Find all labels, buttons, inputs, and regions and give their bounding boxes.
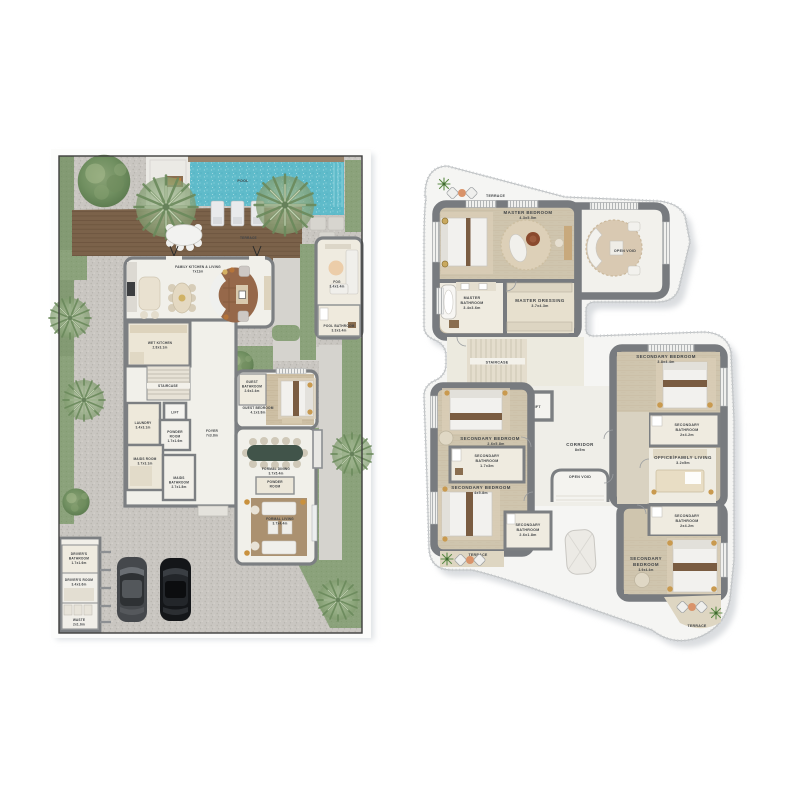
svg-text:3.4x3.6m: 3.4x3.6m (463, 306, 480, 310)
svg-text:FORMAL LIVING: FORMAL LIVING (266, 517, 294, 521)
svg-text:2.6x5.8m: 2.6x5.8m (487, 442, 504, 446)
svg-text:SECONDARY BEDROOM: SECONDARY BEDROOM (636, 354, 696, 359)
svg-text:WASTE: WASTE (73, 618, 85, 622)
svg-text:7x11m: 7x11m (193, 270, 204, 274)
svg-text:DRIVER'S ROOM: DRIVER'S ROOM (65, 578, 93, 582)
svg-text:BATHROOM: BATHROOM (517, 528, 540, 532)
svg-text:MAIDS: MAIDS (173, 476, 184, 480)
svg-text:MASTER: MASTER (464, 296, 481, 300)
svg-text:4.1x3.8m: 4.1x3.8m (250, 411, 265, 415)
svg-text:DRIVER'S: DRIVER'S (71, 552, 88, 556)
svg-text:SECONDARY BEDROOM: SECONDARY BEDROOM (451, 485, 511, 490)
svg-text:BATHROOM: BATHROOM (169, 481, 189, 485)
svg-text:1.7x1.6m: 1.7x1.6m (167, 439, 182, 443)
svg-text:BATHROOM: BATHROOM (69, 557, 89, 561)
svg-text:3.7x3.1m: 3.7x3.1m (137, 462, 152, 466)
svg-text:STAIRCASE: STAIRCASE (486, 361, 509, 365)
svg-text:MAIDS ROOM: MAIDS ROOM (133, 457, 156, 461)
svg-text:ROOM: ROOM (170, 435, 181, 439)
svg-text:FAMILY KITCHEN & LIVING: FAMILY KITCHEN & LIVING (175, 265, 221, 269)
svg-text:2x1.6m: 2x1.6m (73, 623, 85, 627)
svg-text:3.3x3.4m: 3.3x3.4m (331, 329, 346, 333)
svg-text:OFFICE/FAMILY LIVING: OFFICE/FAMILY LIVING (654, 455, 712, 460)
svg-text:4.3x5.5m: 4.3x5.5m (519, 216, 536, 220)
svg-text:3.7x4.4m: 3.7x4.4m (272, 522, 287, 526)
svg-text:FOG: FOG (333, 280, 341, 284)
svg-text:2.6x1.8m: 2.6x1.8m (519, 533, 536, 537)
svg-text:SECONDARY: SECONDARY (674, 423, 699, 427)
svg-text:3.2x5m: 3.2x5m (676, 461, 690, 465)
svg-text:GUEST: GUEST (246, 380, 258, 384)
svg-text:2.6x2.4m: 2.6x2.4m (244, 389, 259, 393)
svg-text:SECONDARY: SECONDARY (674, 514, 699, 518)
svg-text:POWDER: POWDER (167, 430, 183, 434)
svg-text:BATHROOM: BATHROOM (461, 301, 484, 305)
svg-text:WET KITCHEN: WET KITCHEN (148, 341, 173, 345)
svg-text:LAUNDRY: LAUNDRY (135, 421, 153, 425)
svg-text:FORMAL DINING: FORMAL DINING (262, 467, 291, 471)
svg-text:4x5.8m: 4x5.8m (474, 491, 488, 495)
svg-text:LIFT: LIFT (171, 411, 179, 415)
svg-text:STAIRCASE: STAIRCASE (158, 384, 178, 388)
svg-text:3.7x4.3m: 3.7x4.3m (531, 304, 548, 308)
svg-text:MASTER BEDROOM: MASTER BEDROOM (504, 210, 553, 215)
svg-text:BATHROOM: BATHROOM (676, 428, 699, 432)
svg-text:GUEST BEDROOM: GUEST BEDROOM (242, 406, 273, 410)
svg-text:BATHROOM: BATHROOM (676, 519, 699, 523)
svg-text:TERRACE: TERRACE (240, 236, 257, 240)
svg-text:SECONDARY: SECONDARY (515, 523, 540, 527)
svg-text:CORRIDOR: CORRIDOR (566, 442, 594, 447)
svg-text:BATHROOM: BATHROOM (242, 385, 262, 389)
svg-text:POOL: POOL (237, 179, 249, 183)
svg-text:BATHROOM: BATHROOM (476, 459, 499, 463)
svg-text:3.4x3.4m: 3.4x3.4m (329, 285, 344, 289)
svg-text:3.4x3.6m: 3.4x3.6m (71, 583, 86, 587)
svg-text:8x5m: 8x5m (575, 448, 585, 452)
svg-text:POWDER: POWDER (267, 480, 283, 484)
svg-text:TERRACE: TERRACE (687, 624, 706, 628)
svg-text:TERRACE: TERRACE (486, 194, 505, 198)
svg-text:2x4.2m: 2x4.2m (680, 524, 694, 528)
svg-text:2x4.2m: 2x4.2m (680, 433, 694, 437)
svg-text:FOYER: FOYER (206, 429, 218, 433)
svg-text:3.4x3.1m: 3.4x3.1m (135, 426, 150, 430)
svg-text:1.7x3m: 1.7x3m (480, 464, 494, 468)
svg-text:3.9x4.4m: 3.9x4.4m (638, 568, 653, 572)
svg-text:2.8x3.1m: 2.8x3.1m (152, 346, 167, 350)
svg-text:MASTER DRESSING: MASTER DRESSING (515, 298, 565, 303)
svg-text:2.7x1.8m: 2.7x1.8m (171, 485, 186, 489)
svg-text:3.7x5.4m: 3.7x5.4m (268, 472, 283, 476)
svg-text:ROOM: ROOM (270, 485, 281, 489)
svg-text:1.7x1.6m: 1.7x1.6m (71, 561, 86, 565)
svg-text:SECONDARY: SECONDARY (474, 454, 499, 458)
svg-text:POOL BATHROOM: POOL BATHROOM (324, 324, 355, 328)
svg-text:BEDROOM: BEDROOM (633, 562, 659, 567)
svg-text:7x3.8m: 7x3.8m (206, 434, 218, 438)
svg-text:SECONDARY: SECONDARY (630, 556, 662, 561)
svg-text:OPEN VOID: OPEN VOID (569, 475, 591, 479)
svg-text:OPEN VOID: OPEN VOID (614, 249, 636, 253)
svg-text:3.8x4.4m: 3.8x4.4m (657, 360, 674, 364)
svg-text:SECONDARY BEDROOM: SECONDARY BEDROOM (460, 436, 520, 441)
